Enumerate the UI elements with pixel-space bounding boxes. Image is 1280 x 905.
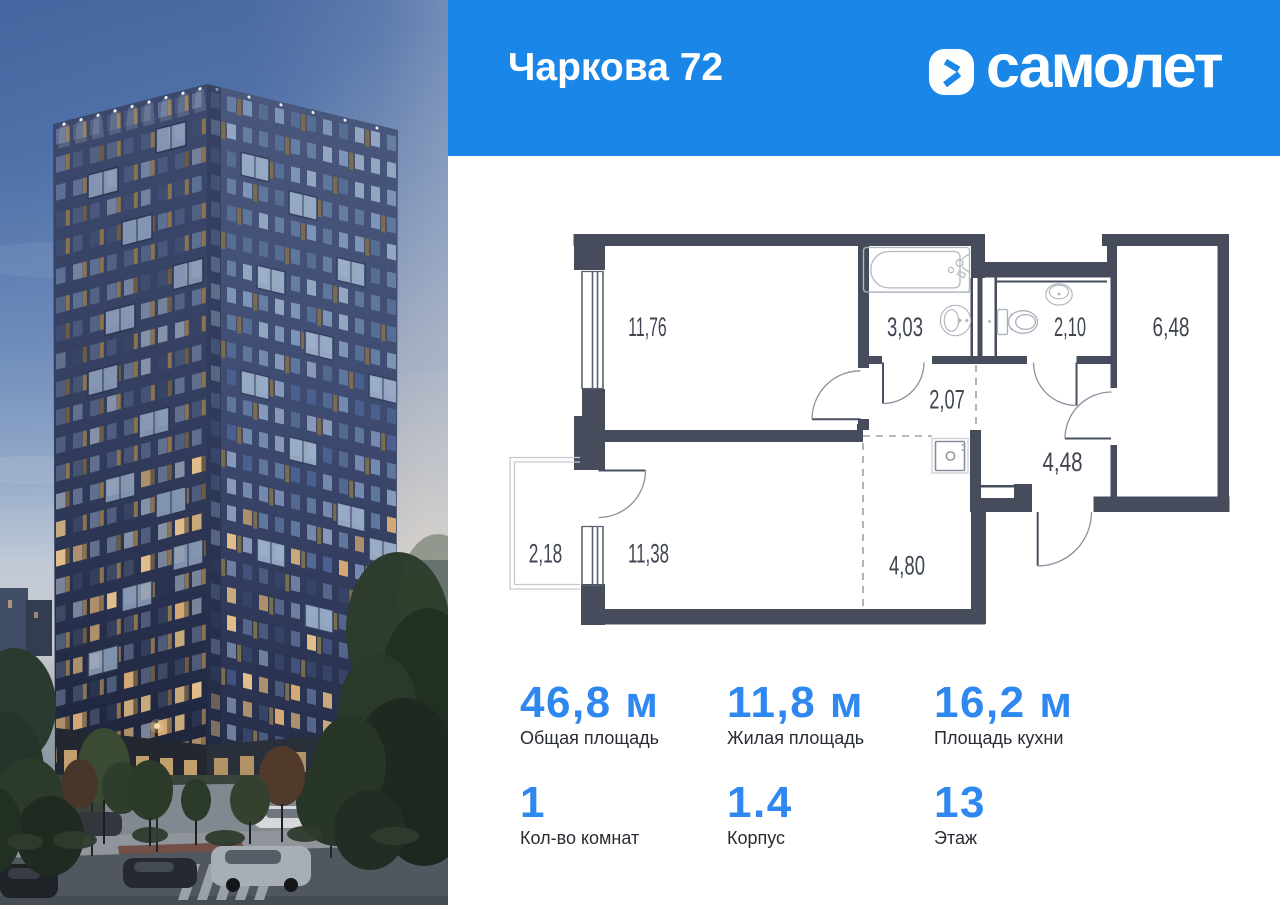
svg-text:2,07: 2,07 (929, 385, 965, 415)
svg-text:4,48: 4,48 (1043, 447, 1083, 477)
svg-text:6,48: 6,48 (1153, 312, 1190, 342)
svg-text:2,18: 2,18 (529, 539, 563, 569)
svg-text:4,80: 4,80 (889, 551, 925, 581)
svg-text:3,03: 3,03 (887, 312, 923, 342)
svg-text:2,10: 2,10 (1054, 312, 1086, 342)
svg-text:11,76: 11,76 (628, 312, 667, 342)
svg-text:11,38: 11,38 (628, 539, 669, 569)
